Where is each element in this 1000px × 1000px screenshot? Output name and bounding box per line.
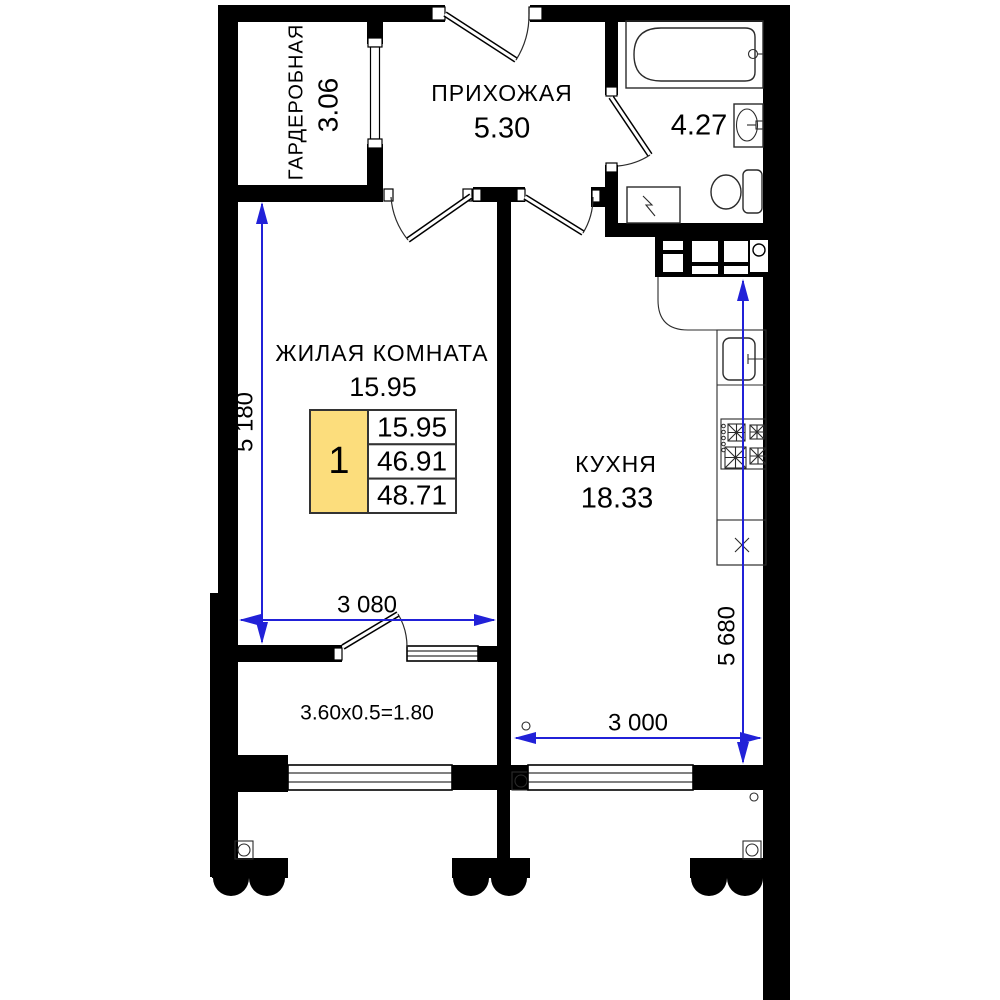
- floor-plan-page: 1 15.95 46.91 48.71 5 180 3 080 5 680 3 …: [0, 0, 1000, 1000]
- label-bathroom-area: 4.27: [671, 110, 727, 142]
- decor-halfround-right: [691, 878, 763, 896]
- wall-left-lower: [210, 593, 238, 877]
- kitchen-fixtures: [658, 277, 766, 565]
- label-wardrobe-name: ГАРДЕРОБНАЯ: [285, 24, 307, 181]
- vent-pipe-icon: [753, 244, 765, 256]
- balcony-pier-left: [212, 755, 288, 792]
- decor-base-right: [690, 858, 763, 878]
- dim-living-height: 5 180: [231, 392, 258, 452]
- entrance-door: [445, 14, 529, 60]
- decor-halfround-middle: [453, 878, 527, 896]
- decor-base-left: [212, 858, 288, 878]
- decor-halfround-left: [213, 878, 285, 896]
- dim-living-width: 3 080: [337, 591, 397, 618]
- balcony-door: [343, 614, 407, 647]
- window-balcony-front: [288, 765, 452, 790]
- wardrobe-sliding-partition: [368, 38, 382, 148]
- wall-wardrobe-bottom: [218, 185, 383, 202]
- facade-decor: [212, 858, 763, 896]
- wall-bath-bottom: [605, 223, 790, 237]
- window-living-balcony: [407, 646, 478, 661]
- wall-top-right: [530, 5, 790, 22]
- label-kitchen-name: КУХНЯ: [575, 451, 657, 477]
- kitchen-sink-icon: [717, 338, 766, 385]
- label-living-name: ЖИЛАЯ КОМНАТА: [275, 340, 488, 366]
- bathtub-icon: [626, 21, 763, 88]
- base-cabinet-icon: [717, 520, 766, 565]
- doors: [343, 14, 650, 647]
- wall-living-kitchen: [497, 202, 511, 765]
- decor-base-middle: [452, 858, 530, 878]
- window-kitchen-front: [528, 765, 693, 790]
- column-symbol: [743, 841, 761, 859]
- wall-hall-bath-upper: [605, 22, 618, 95]
- wall-living-balcony: [218, 645, 342, 662]
- dim-kitchen-width: 3 000: [608, 709, 668, 736]
- wall-living-balcony-block: [478, 646, 497, 662]
- floor-plan-canvas: 1 15.95 46.91 48.71 5 180 3 080 5 680 3 …: [0, 0, 1000, 1000]
- kitchen-bulkhead-outline: [658, 277, 717, 330]
- label-hallway-name: ПРИХОЖАЯ: [431, 80, 573, 106]
- anchor-circle: [522, 722, 530, 730]
- balcony-pier-right: [693, 765, 790, 790]
- summary-apartment-area: 46.91: [377, 445, 447, 476]
- label-wardrobe-area: 3.06: [312, 78, 343, 133]
- anchor-circle: [750, 793, 758, 801]
- summary-rooms-count: 1: [328, 440, 349, 482]
- dimension-labels: 5 180 3 080 5 680 3 000: [231, 392, 740, 736]
- label-balcony-formula: 3.60x0.5=1.80: [300, 702, 434, 725]
- label-kitchen-area: 18.33: [581, 483, 654, 515]
- label-living-area: 15.95: [349, 372, 417, 402]
- living-room-door: [391, 196, 471, 240]
- toilet-icon: [711, 170, 762, 213]
- water-heater-icon: [627, 187, 680, 223]
- bathroom-door: [611, 97, 650, 166]
- wall-stem-below-middle-pier: [497, 790, 510, 862]
- wall-left-upper: [218, 5, 238, 593]
- wall-wardrobe-hall-lower: [367, 144, 383, 185]
- kitchen-door: [525, 197, 593, 233]
- dim-kitchen-height: 5 680: [713, 606, 740, 666]
- summary-total-area: 48.71: [377, 479, 447, 510]
- vent-shaft-openings: [663, 240, 768, 274]
- washbasin-icon: [734, 104, 763, 147]
- summary-box: 1 15.95 46.91 48.71: [310, 410, 456, 513]
- wall-right: [763, 5, 790, 1000]
- summary-living-area: 15.95: [377, 411, 447, 442]
- label-hallway-area: 5.30: [474, 113, 530, 145]
- wall-top-left: [218, 5, 445, 22]
